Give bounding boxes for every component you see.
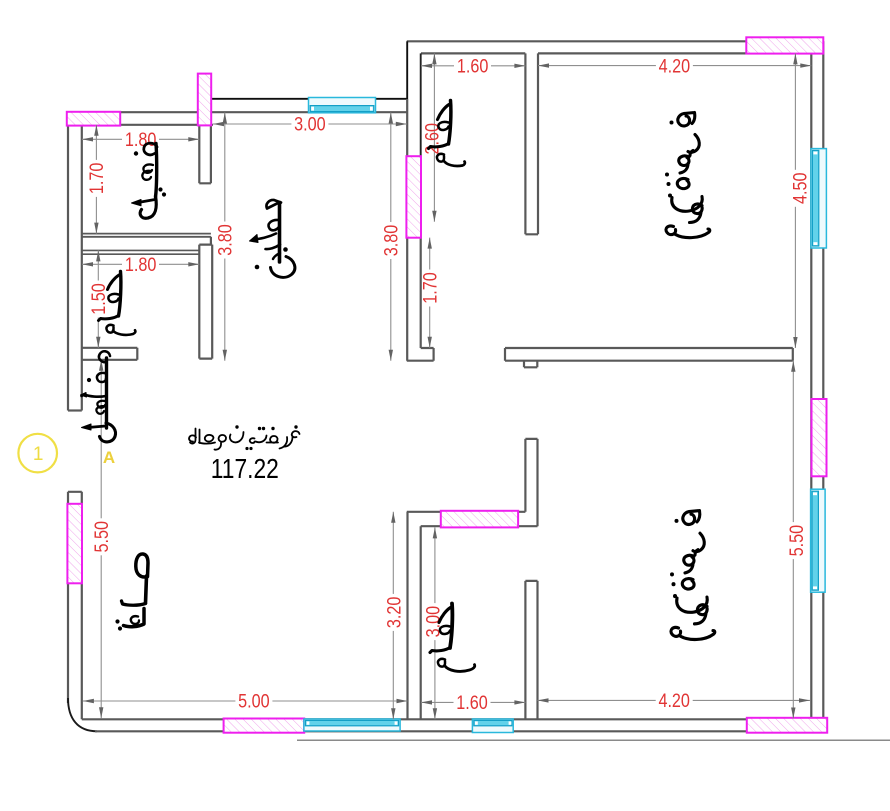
svg-text:1.70: 1.70 <box>87 163 108 195</box>
svg-text:5.50: 5.50 <box>92 521 113 553</box>
svg-text:1: 1 <box>33 444 44 465</box>
svg-text:117.22: 117.22 <box>211 453 279 484</box>
svg-text:3.80: 3.80 <box>216 224 237 256</box>
svg-text:3.20: 3.20 <box>385 597 406 629</box>
svg-text:1.60: 1.60 <box>456 693 488 714</box>
svg-text:4.50: 4.50 <box>791 173 812 205</box>
svg-text:3.00: 3.00 <box>294 115 326 136</box>
svg-text:1.80: 1.80 <box>125 130 157 151</box>
svg-text:1.70: 1.70 <box>420 272 441 304</box>
svg-text:5.00: 5.00 <box>238 692 270 713</box>
svg-text:A: A <box>103 448 115 467</box>
svg-text:4.20: 4.20 <box>658 691 690 712</box>
svg-text:1.80: 1.80 <box>125 255 157 276</box>
svg-text:5.50: 5.50 <box>787 525 808 557</box>
svg-text:2.60: 2.60 <box>423 123 444 155</box>
svg-text:1.60: 1.60 <box>457 57 489 78</box>
svg-text:4.20: 4.20 <box>659 56 691 77</box>
svg-text:3.80: 3.80 <box>382 225 403 257</box>
